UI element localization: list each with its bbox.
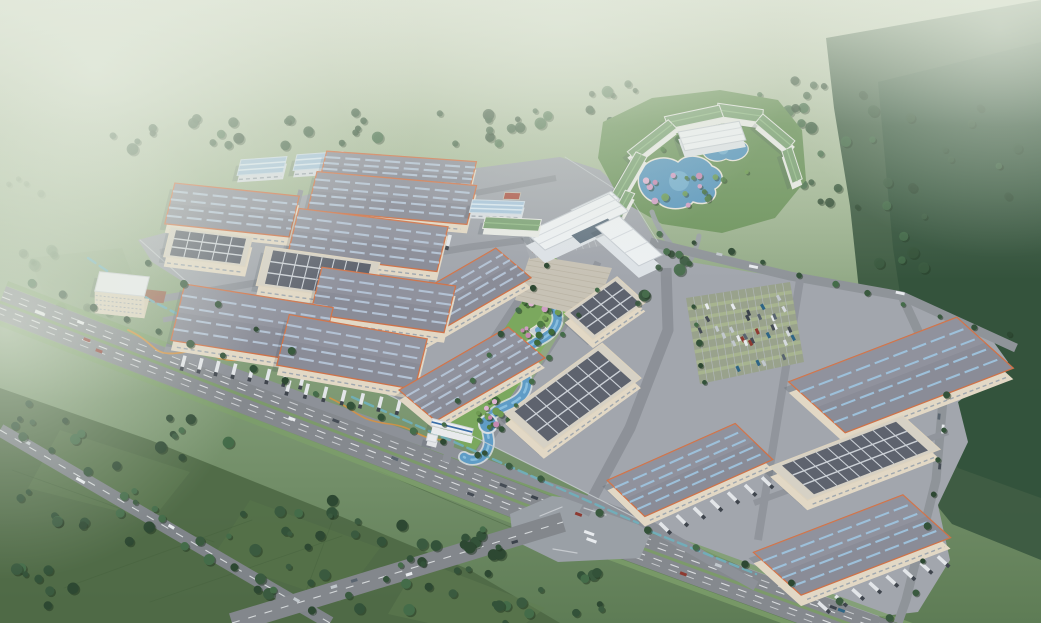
rendered-scene bbox=[0, 0, 1041, 623]
aerial-rendering-industrial-park bbox=[0, 0, 1041, 623]
